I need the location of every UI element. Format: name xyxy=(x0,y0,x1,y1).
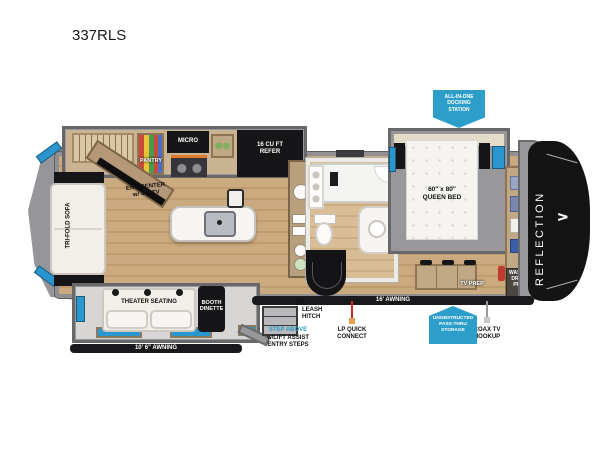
cupholder-icon xyxy=(112,289,119,296)
cupholder-icon xyxy=(144,289,151,296)
bedroom-window-right-icon xyxy=(492,146,505,169)
leash-hitch-label: LEASH HITCH xyxy=(302,307,342,321)
bath-vent-icon xyxy=(336,150,364,157)
slide-window-left-icon xyxy=(76,296,85,322)
nightstand-right xyxy=(479,143,490,169)
floorplan-canvas: 337RLS PANTRY MICRO 16 CU FT REFER ENT. … xyxy=(0,0,600,450)
page-title: 337RLS xyxy=(72,27,126,45)
step-above-sub-label: w/LIFT ASSIST ENTRY STEPS xyxy=(246,335,330,349)
trash-can-icon xyxy=(227,189,244,208)
sofa-label: TRI-FOLD SOFA xyxy=(65,181,72,271)
leash-hitch-icon xyxy=(296,298,304,305)
dresser-handle xyxy=(420,260,432,265)
booth-dinette-label: BOOTH DINETTE xyxy=(197,300,226,313)
theater-cushion xyxy=(106,310,148,329)
tv-prep-label: TV PREP xyxy=(452,281,492,287)
coax-tip-icon xyxy=(484,317,490,323)
microwave-label: MICRO xyxy=(167,138,209,145)
sofa-arm-top xyxy=(54,172,104,183)
dresser-handle xyxy=(464,260,476,265)
faucet-icon xyxy=(217,220,222,225)
pass-thru-storage-badge: UNOBSTRUCTED PASS-THRU STORAGE xyxy=(429,306,477,344)
lp-connect-tip-icon xyxy=(349,318,355,324)
lp-quick-connect-label: LP QUICK CONNECT xyxy=(326,327,378,341)
refrigerator-label: 16 CU FT REFER xyxy=(237,142,303,156)
main-awning-bar: 16' AWNING xyxy=(252,296,534,305)
cupholder-icon xyxy=(176,289,183,296)
brand-arrow-icon: ∧ xyxy=(554,212,572,223)
vanity-sink-icon xyxy=(368,220,386,238)
shower-fixture-icon xyxy=(330,172,338,186)
stove-icon xyxy=(171,155,207,177)
side-cabinet xyxy=(211,134,234,158)
toilet-bowl-icon xyxy=(315,222,333,246)
pantry-label: PANTRY xyxy=(133,158,169,164)
docking-station-badge: ALL-IN-ONE DOCKING STATION xyxy=(433,90,485,128)
bedroom-window-left-icon xyxy=(389,147,396,172)
brand-label: REFLECTION xyxy=(534,158,546,286)
step-above-label: STEP ABOVE xyxy=(246,327,330,334)
theater-seating-label: THEATER SEATING xyxy=(102,299,196,306)
theater-cushion xyxy=(150,310,192,329)
rear-awning-bar: 10' 6" AWNING xyxy=(70,344,242,353)
queen-bed-label: 60" x 80" QUEEN BED xyxy=(406,186,478,201)
dresser-handle xyxy=(442,260,454,265)
fire-extinguisher-icon xyxy=(498,266,505,281)
sofa-cushion-line xyxy=(54,228,102,230)
linen-cabinet xyxy=(308,165,324,209)
